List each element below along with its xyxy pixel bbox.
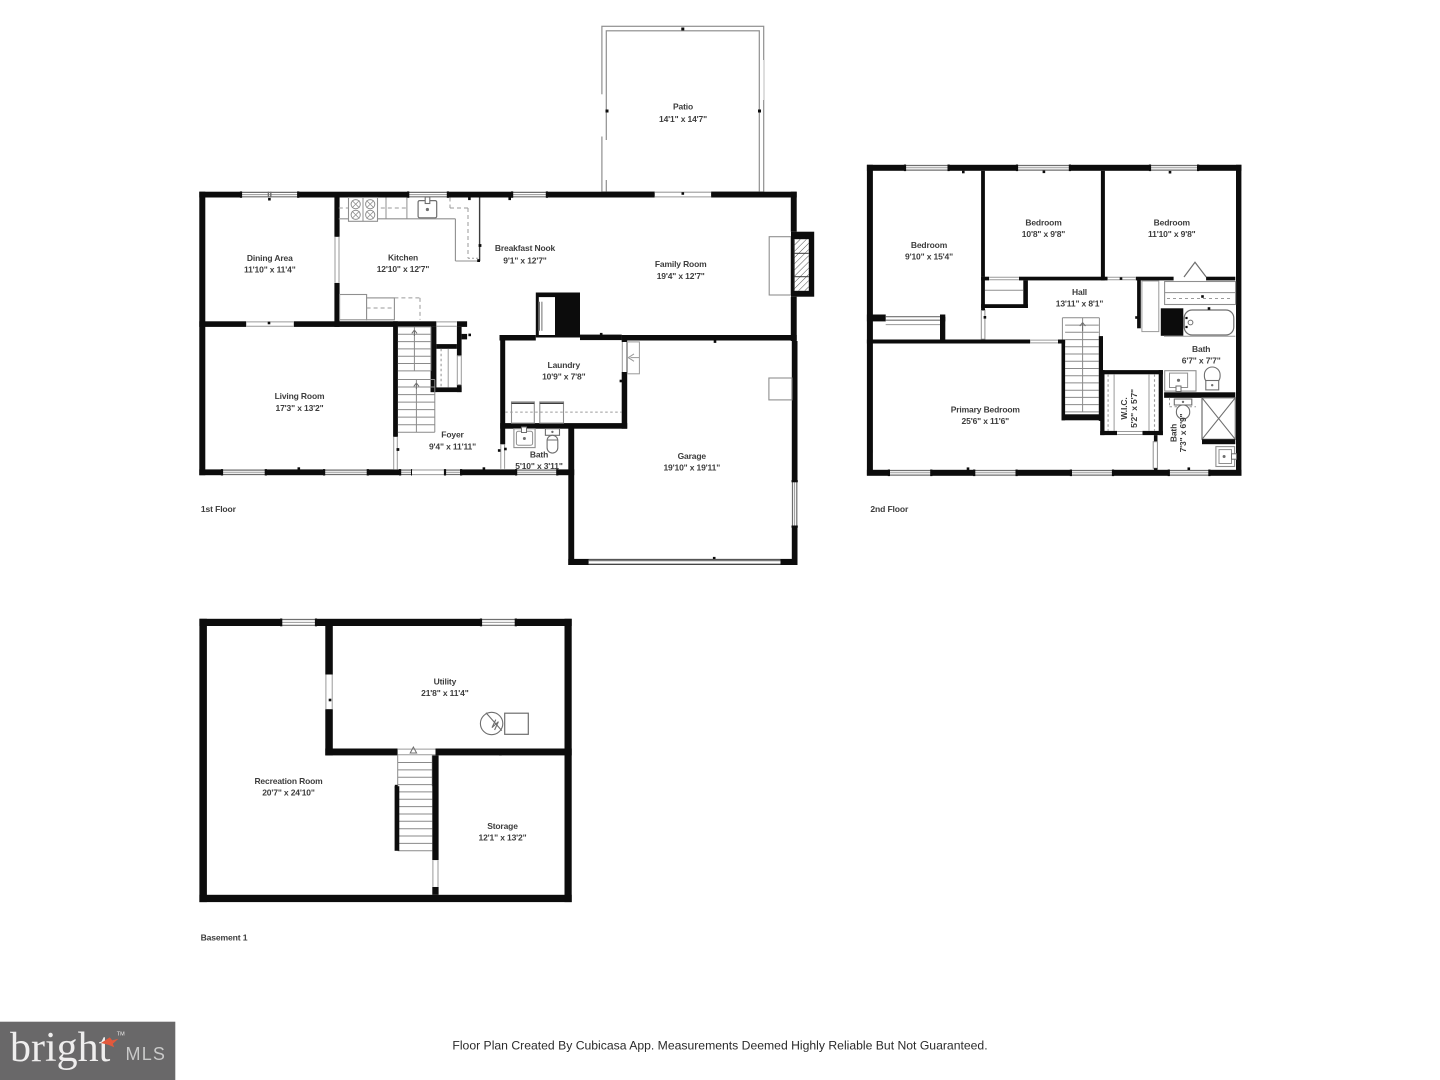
svg-text:Primary Bedroom: Primary Bedroom [951, 404, 1021, 414]
svg-text:Bath: Bath [530, 450, 548, 460]
svg-text:5'10" x 3'11": 5'10" x 3'11" [515, 461, 563, 471]
svg-text:Utility: Utility [434, 677, 457, 687]
svg-text:Laundry: Laundry [548, 360, 581, 370]
svg-text:5'2" x 5'7": 5'2" x 5'7" [1129, 389, 1139, 428]
svg-text:Bath: Bath [1192, 344, 1210, 354]
svg-text:W.I.C.: W.I.C. [1119, 397, 1129, 419]
svg-text:10'9" x 7'8": 10'9" x 7'8" [542, 372, 586, 382]
svg-text:Floor Plan Created By Cubicasa: Floor Plan Created By Cubicasa App. Meas… [452, 1038, 987, 1052]
svg-text:2nd Floor: 2nd Floor [870, 504, 909, 514]
svg-text:11'10" x 11'4": 11'10" x 11'4" [244, 265, 296, 275]
svg-text:11'10" x 9'8": 11'10" x 9'8" [1148, 229, 1196, 239]
svg-text:10'8" x 9'8": 10'8" x 9'8" [1022, 229, 1066, 239]
svg-text:Kitchen: Kitchen [388, 252, 418, 262]
svg-text:Breakfast Nook: Breakfast Nook [495, 243, 556, 253]
svg-text:bright: bright [10, 1025, 111, 1071]
svg-text:19'10" x 19'11": 19'10" x 19'11" [663, 462, 720, 472]
svg-text:7'3" x 6'9": 7'3" x 6'9" [1178, 413, 1188, 452]
svg-text:6'7" x 7'7": 6'7" x 7'7" [1182, 356, 1221, 366]
svg-text:Garage: Garage [678, 451, 707, 461]
svg-text:1st Floor: 1st Floor [201, 504, 237, 514]
svg-text:9'10" x 15'4": 9'10" x 15'4" [905, 252, 953, 262]
svg-text:19'4" x 12'7": 19'4" x 12'7" [657, 271, 705, 281]
svg-text:12'1" x 13'2": 12'1" x 13'2" [479, 833, 527, 843]
svg-text:Bedroom: Bedroom [1154, 217, 1191, 227]
svg-text:Storage: Storage [487, 821, 518, 831]
svg-text:9'1" x 12'7": 9'1" x 12'7" [503, 255, 547, 265]
svg-text:Hall: Hall [1072, 287, 1087, 297]
svg-text:9'4" x 11'11": 9'4" x 11'11" [429, 441, 476, 451]
svg-text:Bedroom: Bedroom [1025, 217, 1062, 227]
svg-text:Foyer: Foyer [441, 430, 464, 440]
svg-text:Family Room: Family Room [655, 259, 707, 269]
svg-text:20'7" x 24'10": 20'7" x 24'10" [262, 787, 315, 797]
svg-text:Living Room: Living Room [275, 391, 325, 401]
svg-text:MLS: MLS [126, 1044, 167, 1064]
svg-text:TM: TM [117, 1031, 125, 1037]
svg-text:Bedroom: Bedroom [911, 240, 948, 250]
svg-text:Recreation Room: Recreation Room [254, 776, 323, 786]
svg-text:Bath: Bath [1169, 424, 1179, 442]
svg-text:17'3" x 13'2": 17'3" x 13'2" [276, 403, 324, 413]
svg-text:14'1" x 14'7": 14'1" x 14'7" [659, 114, 707, 124]
svg-text:25'6" x 11'6": 25'6" x 11'6" [962, 416, 1010, 426]
svg-text:Basement 1: Basement 1 [201, 933, 248, 943]
svg-text:12'10" x 12'7": 12'10" x 12'7" [377, 264, 430, 274]
svg-text:21'8" x 11'4": 21'8" x 11'4" [421, 688, 469, 698]
svg-text:Dining Area: Dining Area [247, 253, 293, 263]
svg-text:13'11" x 8'1": 13'11" x 8'1" [1056, 299, 1104, 309]
svg-text:Patio: Patio [673, 102, 693, 112]
